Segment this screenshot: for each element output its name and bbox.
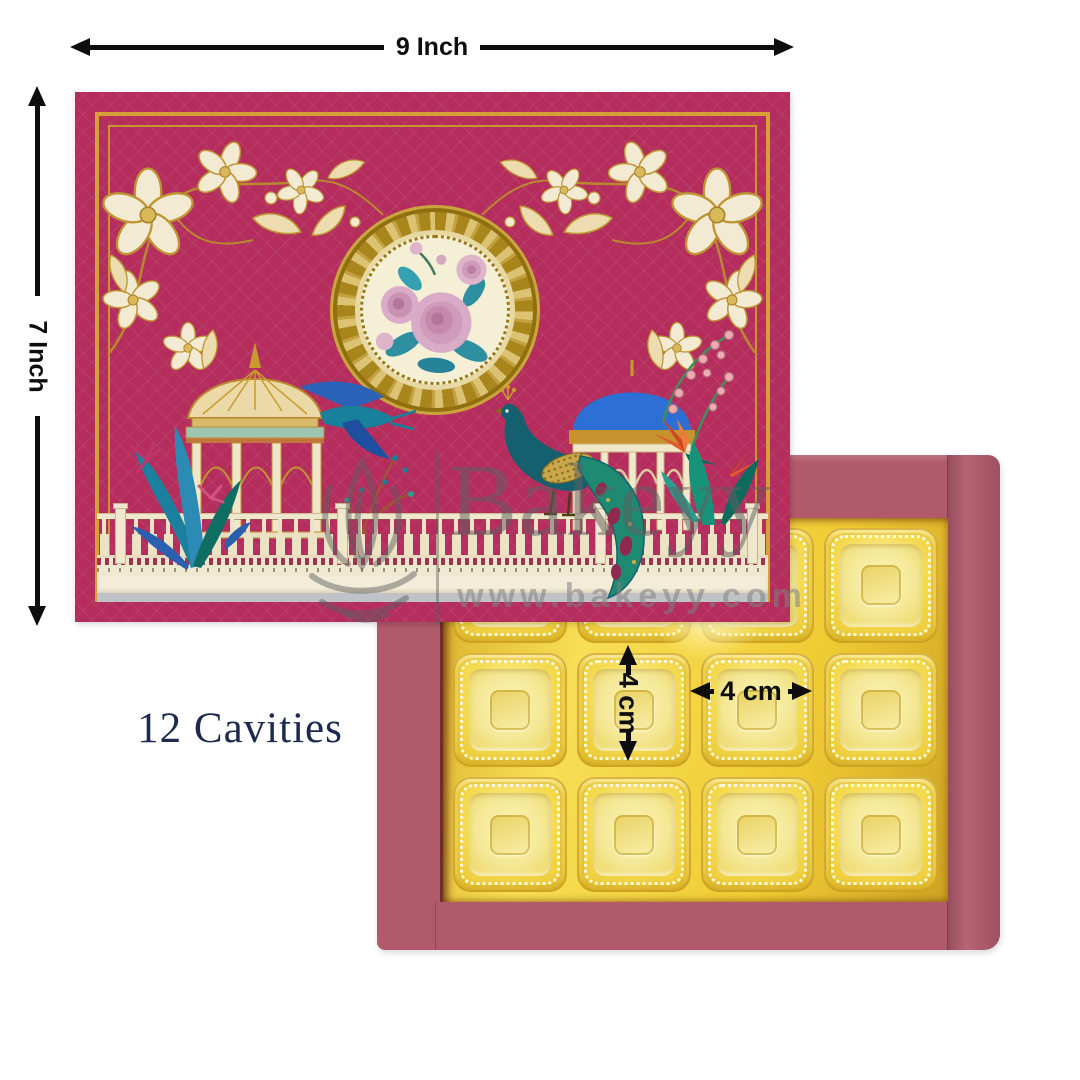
arrowhead-left-icon	[70, 38, 90, 56]
cavity-center-pit	[861, 690, 901, 730]
dimension-line	[35, 106, 40, 296]
cavity-center-pit	[490, 815, 530, 855]
arrowhead-right-icon	[792, 682, 812, 700]
arrowhead-right-icon	[774, 38, 794, 56]
cavity-cell	[701, 777, 815, 892]
arrowhead-down-icon	[619, 741, 637, 761]
cavity-width-annotation: 4 cm	[690, 674, 812, 708]
height-dimension-label-box: 7 Inch	[1, 296, 73, 416]
box-lid	[75, 92, 790, 622]
cavity-cell	[824, 528, 938, 643]
coral-flowers	[633, 325, 768, 530]
cavity-cell	[453, 653, 567, 768]
cavity-cell	[824, 777, 938, 892]
arrowhead-up-icon	[28, 86, 46, 106]
arrowhead-down-icon	[28, 606, 46, 626]
height-dimension-label: 7 Inch	[23, 320, 52, 392]
cavity-cell	[453, 777, 567, 892]
rose-bouquet	[347, 222, 523, 398]
cavity-center-pit	[861, 815, 901, 855]
width-dimension-annotation: 9 Inch	[70, 33, 794, 61]
cavity-center-pit	[737, 815, 777, 855]
dimension-line	[480, 45, 774, 50]
cavity-center-pit	[861, 565, 901, 605]
dimension-line	[90, 45, 384, 50]
cavity-width-label: 4 cm	[714, 676, 788, 707]
cavity-height-label: 4 cm	[613, 672, 644, 734]
dimension-line	[35, 416, 40, 606]
cavity-height-label-box: 4 cm	[597, 675, 659, 730]
cavity-center-pit	[614, 815, 654, 855]
base-right-side-face	[947, 455, 1000, 950]
cavity-center-pit	[490, 690, 530, 730]
tropical-plants	[113, 402, 253, 572]
arrowhead-left-icon	[690, 682, 710, 700]
product-image: 9 Inch 7 Inch	[0, 0, 1080, 1080]
height-dimension-annotation: 7 Inch	[22, 86, 52, 626]
base-corner-seam	[435, 902, 436, 950]
cavity-cell	[577, 777, 691, 892]
fence-post	[337, 506, 348, 564]
cavity-count-label: 12 Cavities	[110, 704, 370, 753]
width-dimension-label: 9 Inch	[384, 33, 480, 62]
cavity-height-annotation: 4 cm	[606, 645, 650, 761]
cavity-cell	[824, 653, 938, 768]
cavity-cell	[701, 653, 815, 768]
arrowhead-up-icon	[619, 645, 637, 665]
